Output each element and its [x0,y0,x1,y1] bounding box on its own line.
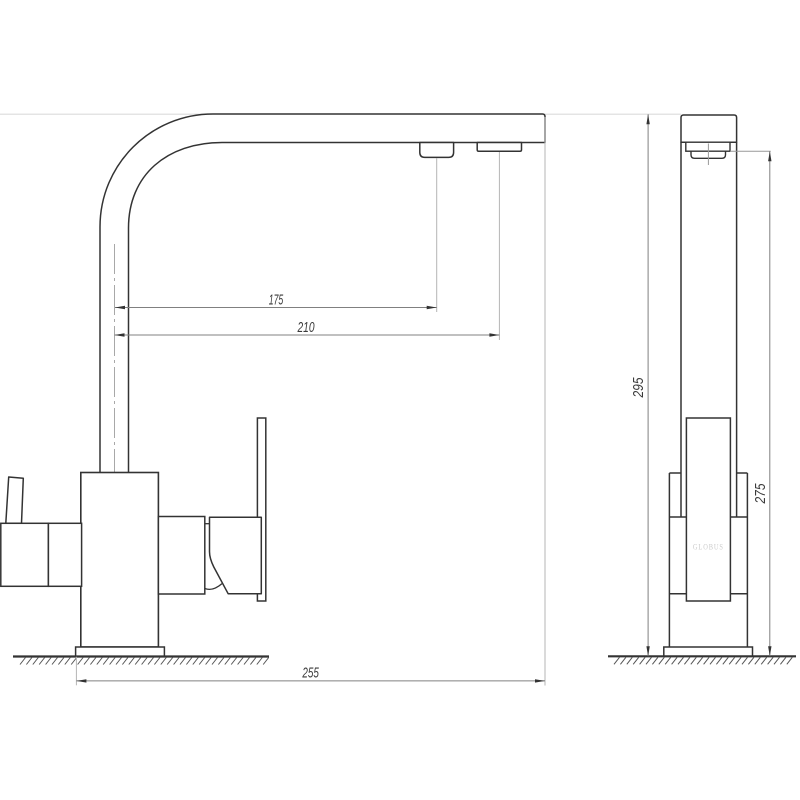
svg-text:295: 295 [631,377,647,399]
svg-text:255: 255 [302,665,320,681]
svg-text:275: 275 [753,483,769,505]
svg-text:175: 175 [269,293,284,309]
svg-text:210: 210 [297,320,315,336]
svg-text:GLOBUS: GLOBUS [693,541,724,551]
